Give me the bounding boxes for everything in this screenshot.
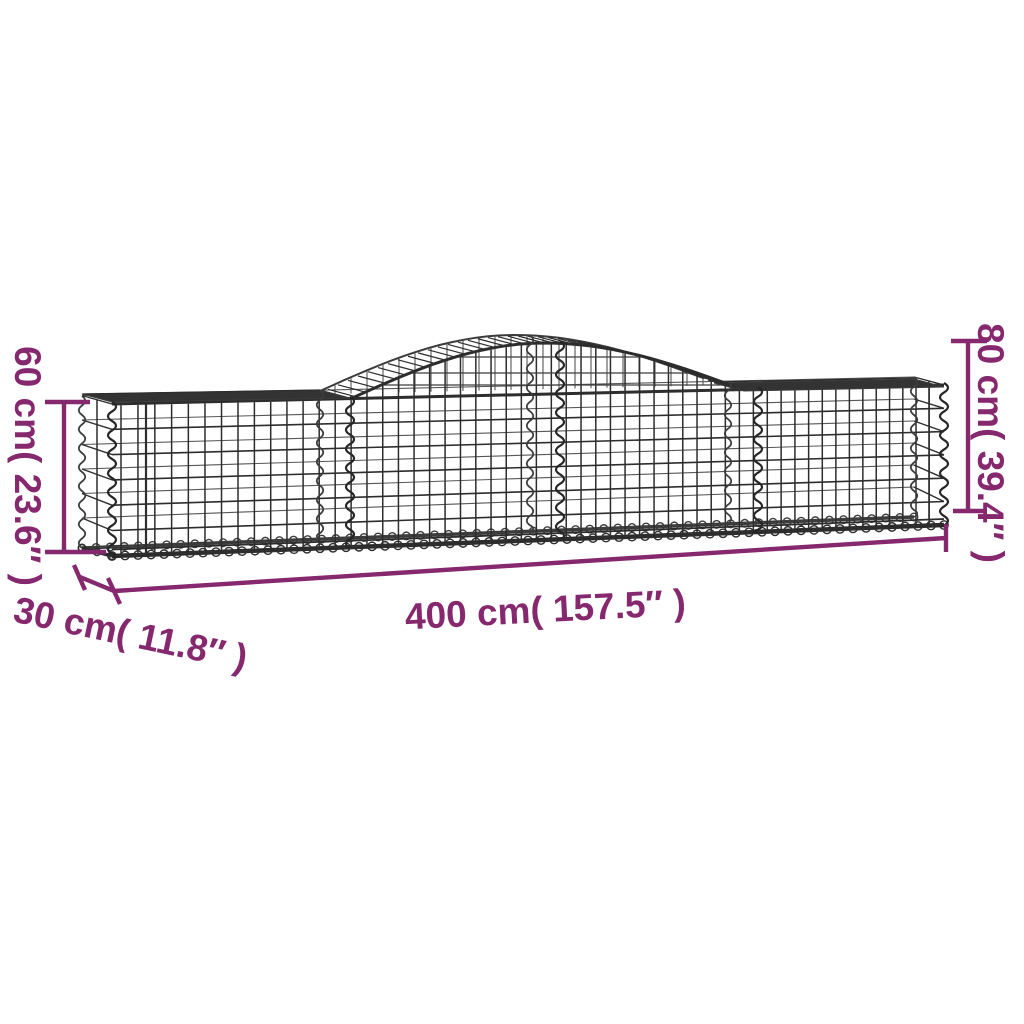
height-left-label: 60 cm( 23.6″ ) [7, 346, 48, 586]
dimension-labels: 60 cm( 23.6″ ) 80 cm( 39.4″ ) 400 cm( 15… [7, 323, 1011, 678]
wire-segment [478, 339, 506, 347]
wire-segment [82, 443, 914, 469]
wire-segment [368, 372, 396, 380]
gabion-basket-illustration [78, 335, 948, 560]
length-label: 400 cm( 157.5″ ) [404, 582, 687, 638]
wire-segment [79, 396, 85, 548]
gabion-dimension-diagram: 60 cm( 23.6″ ) 80 cm( 39.4″ ) 400 cm( 15… [0, 0, 1024, 1024]
wire-segment [348, 380, 376, 388]
wire-segment [338, 385, 366, 393]
wire-segment [398, 360, 426, 368]
wire-segment [378, 368, 406, 376]
wire-segment [358, 376, 386, 384]
wire-segment [82, 421, 914, 445]
wire-segment [112, 502, 944, 531]
wire-segment [82, 465, 914, 494]
wire-segment [112, 408, 944, 429]
wire-segment [388, 364, 416, 372]
wire-segment [488, 338, 516, 346]
wire-segment [408, 356, 436, 364]
wire-segment [317, 391, 323, 539]
diagram-canvas: 60 cm( 23.6″ ) 80 cm( 39.4″ ) 400 cm( 15… [0, 0, 1024, 1024]
wire-segment [468, 340, 496, 348]
height-right-label: 80 cm( 39.4″ ) [970, 323, 1011, 563]
wire-segment [556, 341, 564, 540]
depth-label: 30 cm( 11.8″ ) [10, 589, 251, 679]
